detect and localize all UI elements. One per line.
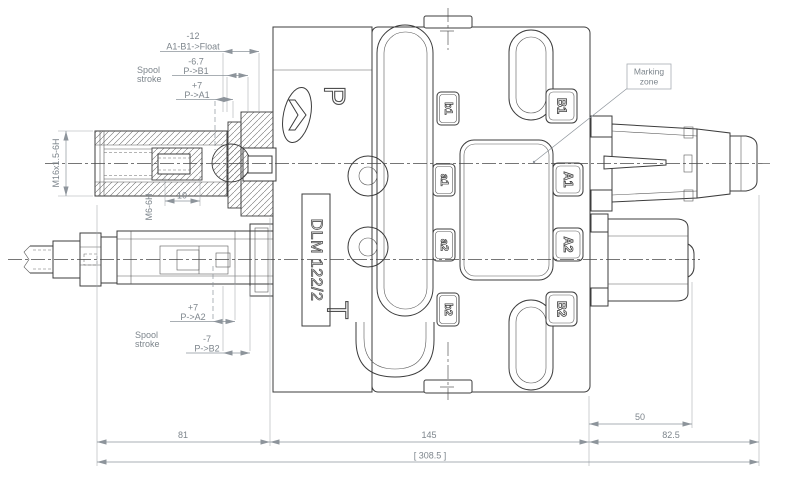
model-label: DLM 122/2 <box>308 219 325 302</box>
port-text-B2: B2 <box>555 301 569 317</box>
port-label-A2: A2 <box>553 228 583 261</box>
dim-text-overall: [ 308.5 ] <box>414 451 447 461</box>
port-label-B2: B2 <box>546 292 577 326</box>
clamp-block-bottom <box>591 190 612 211</box>
port-t-letter: T <box>321 301 354 319</box>
pa1-stroke-value: +7 <box>192 81 202 91</box>
port-text-b1: b1 <box>442 102 454 115</box>
cap-tube <box>608 219 688 301</box>
clamp2-block-top <box>591 214 608 232</box>
inner-thread-label: M6-6H <box>144 193 154 220</box>
port-label-a1: a1 <box>433 164 455 196</box>
technical-drawing-page: P T DLM 122/2 b1 a1 a2 b2 <box>0 0 800 480</box>
port-label-b1: b1 <box>437 92 459 125</box>
pb2-stroke-value: -7 <box>203 334 211 344</box>
pb1-stroke-label: P->B1 <box>183 66 208 76</box>
dim-text-50: 50 <box>635 412 645 422</box>
pb1-stroke-value: -6.7 <box>188 57 204 67</box>
port-text-a2: a2 <box>438 239 450 251</box>
body-left-plate <box>273 27 372 392</box>
port-label-A1: A1 <box>553 163 583 196</box>
port-text-A2: A2 <box>561 237 575 253</box>
spool-ball-section <box>212 144 250 182</box>
sleeve-wall-top-section <box>95 131 227 145</box>
port-label-b2: b2 <box>437 293 459 326</box>
port-p-letter: P <box>318 86 351 106</box>
port-text-A1: A1 <box>561 172 575 188</box>
port-text-B1: B1 <box>555 98 569 114</box>
marking-zone-outer <box>460 140 553 280</box>
port-label-a2: a2 <box>433 229 455 261</box>
outer-thread-label: M16x1.5-6H <box>51 138 61 187</box>
spool-stroke-bottom-word2: stroke <box>135 339 160 349</box>
clamp2-block-bottom <box>591 288 608 306</box>
marking-zone-text-2: zone <box>640 77 659 87</box>
clamp-block-top <box>591 116 612 137</box>
float-stroke-value: -12 <box>186 31 199 41</box>
marking-leader-dot <box>533 161 535 163</box>
dim-text-82-5: 82.5 <box>662 430 680 440</box>
spool-stem <box>248 156 272 173</box>
cap-nose <box>688 244 694 277</box>
inner-thread-window <box>158 154 190 174</box>
pa2-stroke-label: P->A2 <box>180 312 205 322</box>
port-text-a1: a1 <box>438 174 450 186</box>
right-bottom-actuator <box>591 214 694 306</box>
sleeve-front-flange <box>101 237 117 283</box>
dim-text-145: 145 <box>421 430 436 440</box>
valve-body: P T DLM 122/2 <box>273 8 590 400</box>
marking-zone-text-1: Marking <box>634 67 665 77</box>
sleeve-wall-bottom-section <box>95 182 227 196</box>
dim-text-81: 81 <box>178 430 188 440</box>
port-label-B1: B1 <box>546 89 577 123</box>
pb2-stroke-label: P->B2 <box>194 344 219 354</box>
thread-depth-label: 10 <box>177 191 187 201</box>
port-text-b2: b2 <box>442 303 454 316</box>
marking-zone-pad <box>460 140 553 280</box>
float-stroke-label: A1-B1->Float <box>166 42 220 52</box>
valve-drawing-canvas: P T DLM 122/2 b1 a1 a2 b2 <box>0 0 800 480</box>
bottom-spool-actuator <box>24 224 273 296</box>
pa2-stroke-value: +7 <box>188 303 198 313</box>
pa1-stroke-label: P->A1 <box>184 90 209 100</box>
spool-stroke-top-word2: stroke <box>137 74 162 84</box>
